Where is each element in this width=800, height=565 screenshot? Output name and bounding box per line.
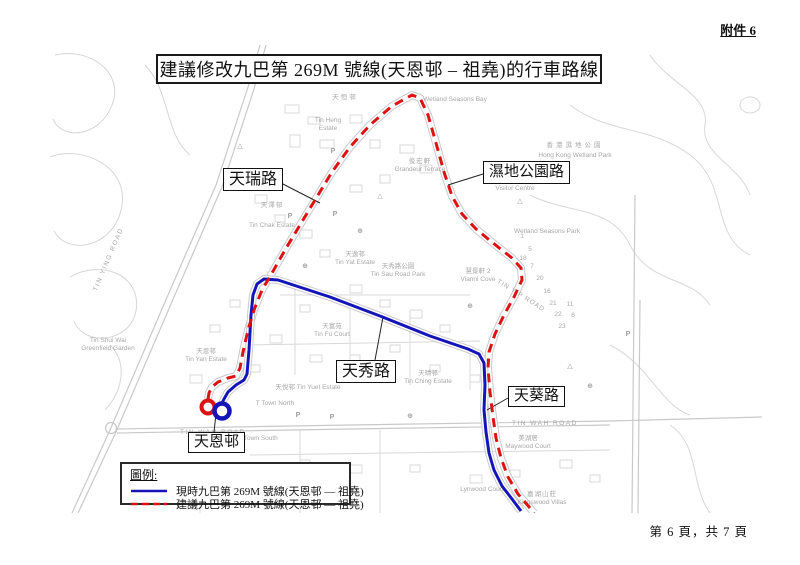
- svg-text:Vianni Cove: Vianni Cove: [461, 276, 496, 283]
- svg-text:天悅邨 Tin Yuet Estate: 天悅邨 Tin Yuet Estate: [275, 382, 340, 391]
- poi-icon: ⊕: [407, 413, 413, 420]
- terminus-marker-current: [215, 404, 230, 419]
- svg-text:18: 18: [519, 255, 527, 262]
- svg-text:TIN YING ROAD: TIN YING ROAD: [92, 227, 125, 292]
- svg-text:Visitor Centre: Visitor Centre: [495, 185, 535, 192]
- svg-text:Maywood Court: Maywood Court: [505, 443, 551, 450]
- parking-icon: P: [626, 331, 631, 338]
- legend-line-solid-blue: [130, 488, 168, 494]
- attachment-label: 附件 6: [720, 20, 756, 39]
- svg-text:天晴邨: 天晴邨: [418, 368, 438, 377]
- svg-text:天恩邨: 天恩邨: [196, 347, 216, 355]
- svg-text:天澤邨: 天澤邨: [261, 200, 284, 209]
- legend-heading: 圖例:: [130, 466, 349, 483]
- road-label-tin-kwai-road: 天葵路: [508, 386, 565, 407]
- legend-item-proposed: 建議九巴第 269M 號線(天恩邨 — 祖堯): [130, 497, 349, 510]
- svg-text:慧景軒 2: 慧景軒 2: [466, 266, 491, 275]
- svg-text:嘉湖山莊: 嘉湖山莊: [527, 489, 557, 498]
- footer-page-number: 第 6 頁，共 7 頁: [649, 521, 748, 540]
- svg-text:Tin Fu Court: Tin Fu Court: [314, 331, 350, 338]
- svg-text:20: 20: [536, 275, 544, 282]
- svg-text:22: 22: [554, 311, 562, 318]
- svg-text:6: 6: [571, 312, 575, 319]
- svg-text:Tin Ching Estate: Tin Ching Estate: [404, 378, 452, 385]
- parking-icon: P: [330, 414, 335, 421]
- page-title: 建議修改九巴第 269M 號線(天恩邨 – 祖堯)的行車路線: [156, 54, 602, 84]
- svg-text:Wetland Seasons Bay: Wetland Seasons Bay: [423, 96, 488, 103]
- svg-text:天富苑: 天富苑: [322, 321, 342, 330]
- svg-text:天恒邨: 天恒邨: [332, 92, 358, 101]
- pavilion-icon: △: [517, 198, 523, 205]
- base-map-svg: Tin Shui Wai Greenfield Garden TIN YING …: [50, 45, 762, 513]
- pavilion-icon: △: [237, 143, 243, 150]
- svg-text:天秀路公園: 天秀路公園: [382, 261, 415, 270]
- svg-text:Tin Shui Wai: Tin Shui Wai: [90, 337, 126, 344]
- road-label-wetland-park-road: 濕地公園路: [483, 161, 570, 184]
- poi-icon: ⊕: [357, 228, 363, 235]
- svg-text:Lynwood Court: Lynwood Court: [460, 486, 504, 493]
- svg-text:Grandeur Terrace: Grandeur Terrace: [395, 166, 446, 173]
- legend-line-dashed-red: [130, 501, 168, 507]
- svg-text:TIN WAH ROAD: TIN WAH ROAD: [512, 420, 578, 427]
- road-label-tin-yan-estate: 天恩邨: [188, 432, 245, 453]
- legend-label-proposed: 建議九巴第 269M 號線(天恩邨 — 祖堯): [176, 496, 364, 512]
- parking-icon: P: [331, 148, 336, 155]
- svg-text:俊宏軒: 俊宏軒: [409, 156, 432, 165]
- parking-icon: P: [333, 211, 338, 218]
- svg-text:21: 21: [549, 300, 557, 307]
- poi-icon: ⊕: [302, 263, 308, 270]
- svg-text:5: 5: [528, 246, 532, 253]
- svg-text:Tin Sau Road Park: Tin Sau Road Park: [371, 271, 426, 278]
- svg-text:Tin Chak Estate: Tin Chak Estate: [249, 222, 295, 229]
- svg-text:香港濕地公園: 香港濕地公園: [547, 140, 604, 149]
- route-map: Tin Shui Wai Greenfield Garden TIN YING …: [50, 45, 762, 513]
- document-page: { "page": { "attachment_label": "附件 6", …: [0, 0, 800, 565]
- pavilion-icon: △: [377, 193, 383, 200]
- svg-text:Greenfield Garden: Greenfield Garden: [81, 345, 135, 352]
- major-roads: [72, 45, 762, 513]
- svg-text:16: 16: [543, 288, 551, 295]
- road-label-tin-sau-road: 天秀路: [336, 360, 396, 383]
- parking-icon: P: [296, 412, 301, 419]
- poi-icon: ⊕: [467, 303, 473, 310]
- svg-text:美湖居: 美湖居: [518, 433, 538, 442]
- legend-box: 圖例: 現時九巴第 269M 號線(天恩邨 — 祖堯) 建議九巴第 269M 號…: [120, 462, 351, 505]
- svg-text:23: 23: [558, 323, 566, 330]
- svg-text:Tin Heng: Tin Heng: [315, 117, 342, 124]
- minor-streets: [190, 55, 760, 513]
- svg-text:Estate: Estate: [319, 125, 338, 132]
- poi-icon: ⊕: [587, 383, 593, 390]
- svg-text:11: 11: [567, 301, 574, 308]
- svg-text:1: 1: [520, 233, 524, 240]
- svg-text:T Town North: T Town North: [256, 400, 295, 407]
- svg-text:Wetland Seasons Park: Wetland Seasons Park: [514, 228, 581, 235]
- pavilion-icon: △: [567, 363, 573, 370]
- svg-text:天逸邨: 天逸邨: [345, 249, 365, 258]
- svg-text:Hong Kong Wetland Park: Hong Kong Wetland Park: [538, 152, 612, 159]
- parking-icon: P: [288, 213, 293, 220]
- svg-text:Tin Yan Estate: Tin Yan Estate: [185, 356, 227, 363]
- road-label-tin-shui-road: 天瑞路: [223, 168, 283, 191]
- svg-text:Tin Yat Estate: Tin Yat Estate: [335, 259, 375, 266]
- svg-text:7: 7: [530, 263, 534, 270]
